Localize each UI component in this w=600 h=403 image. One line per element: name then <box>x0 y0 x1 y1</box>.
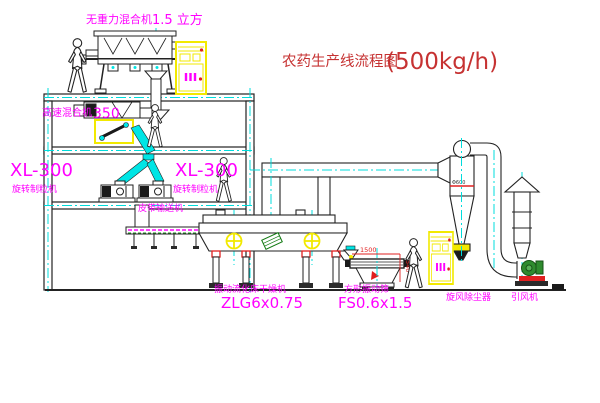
label-granulator-center-name: 旋转制粒机 <box>173 183 218 195</box>
granulator-right <box>137 181 173 202</box>
label-granulator-left-name: 旋转制粒机 <box>12 183 57 195</box>
granulator-left <box>99 181 135 202</box>
label-high-speed-mixer-size: 350 <box>93 106 120 122</box>
label-gravity-mixer-size: 1.5 立方 <box>152 12 203 28</box>
dryer-support <box>329 251 343 288</box>
cyclone-diameter-label: Φ600 <box>452 180 465 186</box>
exhaust-duct <box>262 163 438 222</box>
dryer-support <box>299 251 313 288</box>
label-dryer-model: ZLG6x0.75 <box>221 294 303 312</box>
pesticide-line-flow-diagram: 1500 540 Φ600 农药生产线流程图 (500 <box>0 0 600 403</box>
label-cyclone: 旋风除尘器 <box>446 291 491 303</box>
label-granulator-center-model: XL-300 <box>175 160 238 181</box>
diagram-canvas: 1500 540 Φ600 农药生产线流程图 (500 <box>0 0 600 403</box>
ground-block <box>552 284 564 290</box>
exhaust-stack <box>505 177 539 258</box>
page-title-capacity: (500kg/h) <box>386 49 498 75</box>
control-cabinet-cyclone <box>429 232 453 284</box>
worker-top-floor <box>68 39 86 93</box>
label-high-speed-mixer-name: 高速混合机 <box>42 106 92 119</box>
label-granulator-left-model: XL-300 <box>10 160 73 181</box>
label-belt-conveyor: 皮带输送机 <box>138 202 183 214</box>
induced-draft-fan <box>515 261 548 287</box>
page-title: 农药生产线流程图 <box>282 53 398 70</box>
dimension-1500: 1500 <box>360 246 377 254</box>
label-gravity-mixer-name: 无重力混合机 <box>86 12 152 26</box>
label-fan: 引风机 <box>511 291 538 303</box>
control-cabinet-mixer <box>176 42 206 94</box>
label-sieve-model: FS0.6x1.5 <box>338 294 412 312</box>
high-speed-mixer-frame <box>95 120 133 143</box>
dryer-support <box>209 251 223 288</box>
